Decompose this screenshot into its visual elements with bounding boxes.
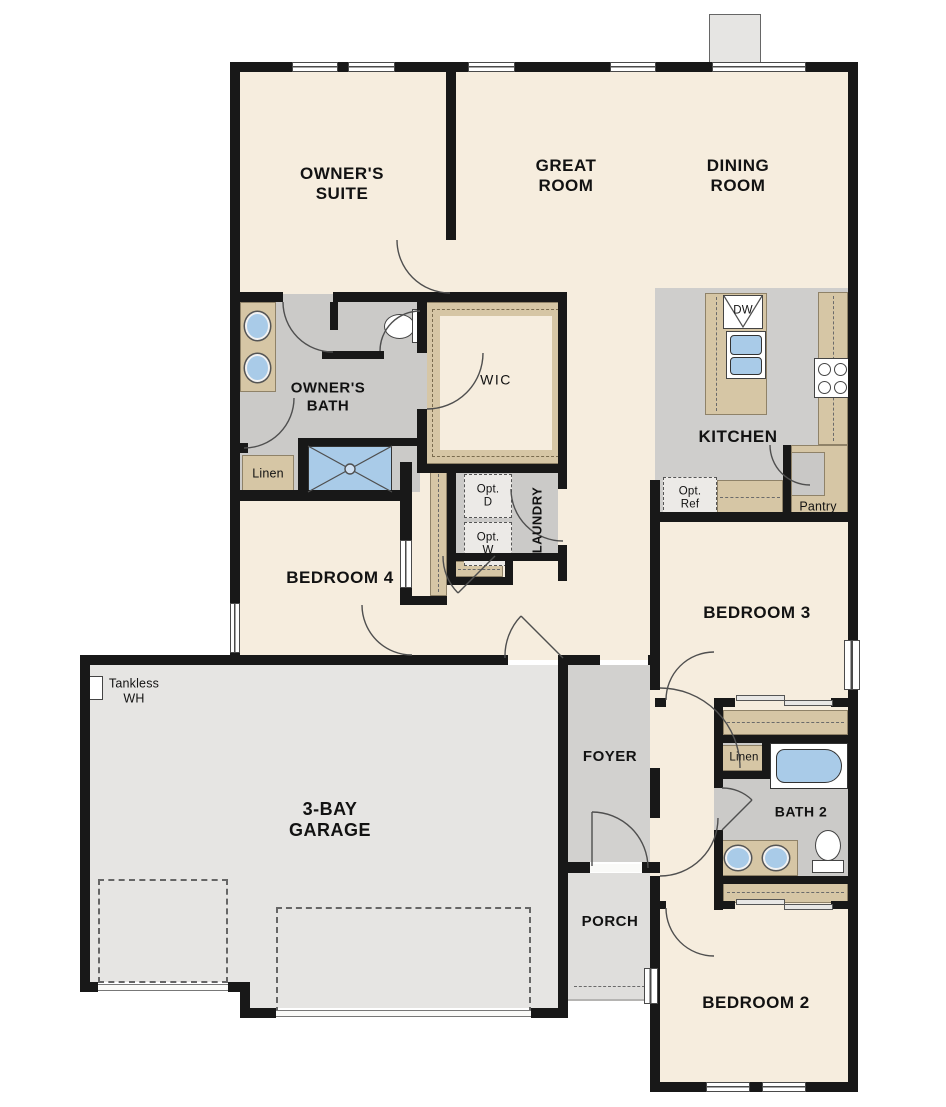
door-arc <box>770 445 810 485</box>
label-pantry: Pantry <box>788 500 848 515</box>
label-linen: Linen <box>238 467 298 482</box>
room-label-porch: PORCH <box>570 913 650 931</box>
door-arc <box>666 908 714 956</box>
door-arc <box>380 311 420 351</box>
label-opt-washer: Opt. W <box>472 531 504 556</box>
room-label-bath2: BATH 2 <box>761 804 841 821</box>
door-panel <box>521 616 563 658</box>
room-label-kitchen: KITCHEN <box>668 427 808 447</box>
shower-drain <box>345 464 355 474</box>
room-label-garage: 3-BAY GARAGE <box>260 799 400 841</box>
door-arc <box>397 240 450 293</box>
door-arc <box>505 616 521 658</box>
door-arc <box>660 818 718 876</box>
label-dishwasher: DW <box>728 305 758 318</box>
label-opt-dryer: Opt. D <box>472 483 504 508</box>
label-linen2: Linen <box>722 752 766 765</box>
door-arc <box>592 812 648 868</box>
room-label-bedroom2: BEDROOM 2 <box>646 993 866 1013</box>
room-label-great-room: GREAT ROOM <box>516 156 616 196</box>
label-tankless-wh: Tankless WH <box>97 676 171 706</box>
door-arc <box>362 605 412 655</box>
door-arc <box>666 652 714 700</box>
door-panel <box>458 556 495 593</box>
room-label-bedroom4: BEDROOM 4 <box>230 568 450 588</box>
door-arc <box>722 788 752 800</box>
room-label-foyer: FOYER <box>570 748 650 766</box>
door-arc <box>283 302 333 352</box>
label-opt-ref: Opt. Ref <box>673 485 707 510</box>
room-label-wic: WIC <box>466 372 526 389</box>
door-panel <box>722 800 752 830</box>
room-label-bedroom3: BEDROOM 3 <box>647 603 867 623</box>
room-label-dining-room: DINING ROOM <box>688 156 788 196</box>
room-label-owners-bath: OWNER'S BATH <box>278 379 378 414</box>
room-label-laundry: LAUNDRY <box>529 475 544 565</box>
floor-plan: OWNER'S SUITE GREAT ROOM DINING ROOM OWN… <box>0 0 946 1107</box>
room-label-owners-suite: OWNER'S SUITE <box>272 164 412 204</box>
